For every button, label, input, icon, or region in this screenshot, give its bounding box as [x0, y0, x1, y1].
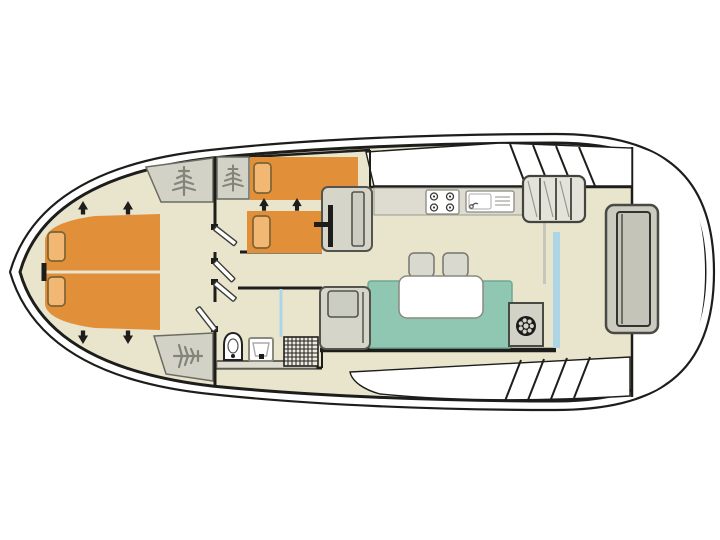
companionway-stairs — [523, 176, 585, 222]
stool — [443, 253, 468, 277]
shower-grid-icon — [284, 337, 318, 366]
bed-edge-mark — [42, 263, 47, 281]
washbasin-icon — [249, 338, 273, 361]
helm-wheel-icon — [516, 316, 536, 336]
door-frame-line — [543, 222, 546, 284]
boat-plan-canvas — [0, 0, 720, 540]
helm-console — [509, 303, 543, 346]
side-deck-top — [366, 143, 632, 186]
saloon-table — [399, 276, 483, 318]
stern-bench — [606, 205, 658, 333]
galley — [374, 188, 523, 215]
pillow — [48, 232, 65, 261]
toilet-icon — [224, 333, 242, 360]
patio-window — [553, 232, 560, 348]
pillow — [253, 216, 270, 248]
pillow — [48, 277, 65, 306]
boat-floor-plan — [0, 0, 720, 540]
sink-icon — [466, 191, 514, 212]
hob-icon — [426, 190, 459, 214]
cabinet-handle — [314, 222, 329, 227]
bench-seat — [320, 287, 370, 349]
cabinet — [314, 187, 372, 251]
pillow — [254, 163, 271, 193]
stool — [409, 253, 434, 277]
